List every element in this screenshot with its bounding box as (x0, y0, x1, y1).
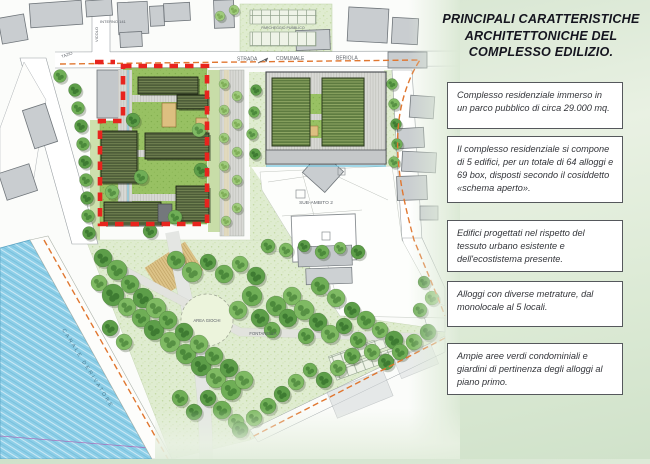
label-area-giochi: AREA GIOCHI (193, 318, 220, 323)
site-plan-map: STRADA COMUNALE BERIOLA INTERNO 141 VICO… (0, 0, 458, 459)
street-label-beriola: BERIOLA (336, 56, 358, 62)
complex-sub-ambito-1 (266, 72, 386, 166)
page-title: PRINCIPALI CARATTERISTICHE ARCHITETTONIC… (434, 11, 648, 61)
street-label-interno: INTERNO 141 (100, 19, 127, 24)
info-box-aree-verdi: Ampie aree verdi condominiali e giardini… (447, 343, 623, 395)
info-box-alloggi: Alloggi con diverse metrature, dal monol… (447, 281, 623, 327)
site-plan-svg: STRADA COMUNALE BERIOLA INTERNO 141 VICO… (0, 0, 458, 459)
street-label-strada: STRADA (237, 57, 258, 63)
street-label-comunale: COMUNALE (276, 56, 305, 62)
label-sub-ambito: SUB-AMBITO 2 (299, 200, 333, 206)
street-label-vicolo: VICOLO (94, 27, 99, 42)
label-fontanella: FONTANELLA (249, 331, 276, 336)
info-box-tessuto: Edifici progettati nel rispetto del tess… (447, 220, 623, 272)
info-box-edifici: Il complesso residenziale si compone di … (447, 136, 623, 203)
label-parcheggio: PARCHEGGIO PUBBLICO (261, 26, 304, 30)
info-box-parco: Complesso residenziale immerso in un par… (447, 82, 623, 129)
